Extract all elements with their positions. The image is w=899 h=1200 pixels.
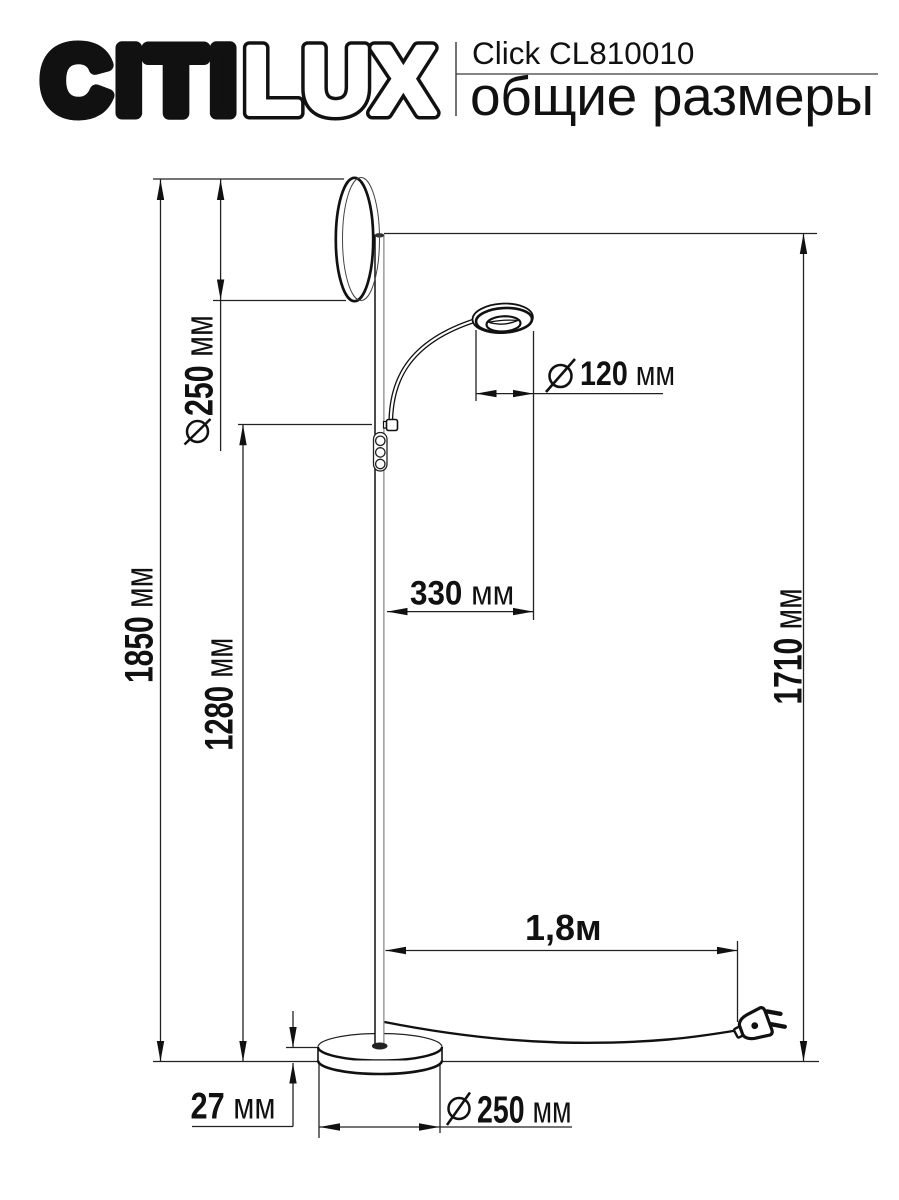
svg-text:1,8м: 1,8м <box>525 907 602 948</box>
svg-text:общие размеры: общие размеры <box>470 65 874 127</box>
svg-text:1280 мм: 1280 мм <box>197 638 242 751</box>
svg-text:120 мм: 120 мм <box>580 353 675 392</box>
svg-text:330 мм: 330 мм <box>410 573 514 612</box>
svg-text:27 мм: 27 мм <box>191 1086 276 1128</box>
svg-text:250 мм: 250 мм <box>176 315 221 416</box>
svg-text:LUX: LUX <box>243 28 436 134</box>
svg-text:1710 мм: 1710 мм <box>766 588 810 704</box>
svg-text:1850 мм: 1850 мм <box>117 567 161 683</box>
svg-text:CITI: CITI <box>42 28 241 134</box>
svg-text:250 мм: 250 мм <box>477 1090 572 1132</box>
